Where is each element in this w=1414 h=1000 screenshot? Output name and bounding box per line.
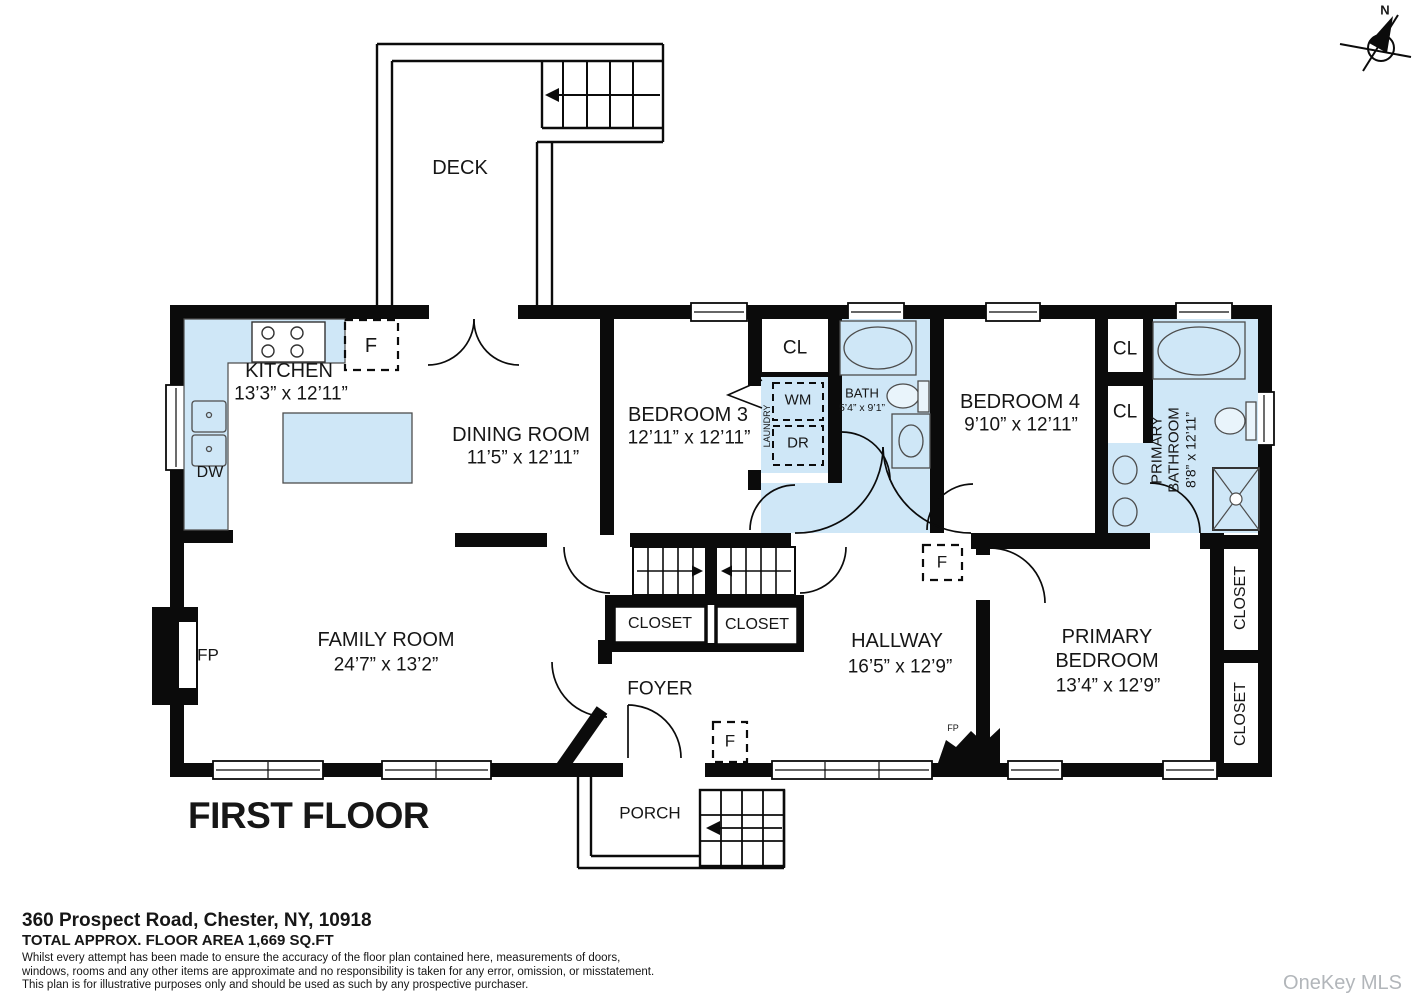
hallway-fireplace [938,728,1000,763]
hallway-label: HALLWAY [851,630,943,652]
disclaimer-line3: This plan is for illustrative purposes o… [22,979,528,992]
primary-bathtub [1153,322,1245,379]
toilet [887,384,919,408]
page-title: FIRST FLOOR [188,795,429,836]
primary-closet2-label: CLOSET [1232,682,1250,746]
bedroom4-closet1-label: CL [1113,338,1137,359]
walls [170,305,1272,777]
floor-area-text: TOTAL APPROX. FLOOR AREA 1,669 SQ.FT [22,933,334,950]
foyer-f-label: F [725,731,735,750]
bedroom4-label: BEDROOM 4 [960,391,1080,413]
bedroom4-dims: 9’10” x 12’11” [964,414,1078,435]
family-room-dims: 24’7” x 13’2” [334,654,439,675]
primary-bathroom-line1: PRIMARY [1149,407,1166,493]
floor-plan-drawing [0,0,1414,1000]
compass-icon [1340,15,1411,71]
hallway-dims: 16’5” x 12’9” [848,656,953,677]
porch-steps [700,790,784,866]
deck-stairs [545,61,660,128]
bedroom3-dims: 12’11” x 12’11” [628,427,751,448]
dishwasher-label: DW [197,464,224,482]
bathtub [840,321,916,375]
bathroom-sink [892,414,930,468]
stair-hall-door-left [564,547,610,593]
deck-door-left [428,319,474,365]
porch-label: PORCH [619,803,680,822]
primary-bathroom-dims: 8’8” x 12’11” [1183,407,1199,493]
deck-stairs-arrow-icon [545,88,559,102]
laundry-label: LAUNDRY [762,405,772,448]
kitchen-label: KITCHEN [245,360,333,382]
deck-door-right [474,319,519,365]
dining-room-label: DINING ROOM [452,424,590,446]
stair-closet-left-label: CLOSET [628,615,692,633]
front-door-arc [628,705,681,758]
primary-bathroom-label: PRIMARY BATHROOM 8’8” x 12’11” [1149,407,1198,493]
stair-hall-door-right [800,547,846,593]
hallway-f-label: F [937,552,947,571]
porch-steps-arrow-icon [706,821,720,835]
dining-room-dims: 11’5” x 12’11” [467,447,579,468]
deck-outline [377,44,663,305]
family-room-label: FAMILY ROOM [317,629,454,651]
bedroom4-closet2-label: CL [1113,401,1137,422]
primary-bedroom-door [990,548,1045,603]
fridge-label: F [365,335,377,357]
primary-bathroom-line2: BATHROOM [1166,407,1183,493]
bath-label: BATH [845,387,879,402]
interior-stairs [633,547,795,595]
disclaimer-line1: Whilst every attempt has been made to en… [22,952,620,965]
primary-bedroom-dims: 13’4” x 12’9” [1056,675,1161,696]
floor-plan-page: DECK KITCHEN 13’3” x 12’11” F DW DINING … [0,0,1414,1000]
stair-closet-right-label: CLOSET [725,616,789,634]
stove [252,322,325,362]
disclaimer-line2: windows, rooms and any other items are a… [22,966,654,979]
deck-label: DECK [432,157,488,179]
foyer-label: FOYER [627,678,692,699]
primary-bedroom-line1: PRIMARY [1062,626,1153,648]
bedroom3-label: BEDROOM 3 [628,404,748,426]
primary-closet1-label: CLOSET [1232,566,1250,630]
hallway-fireplace-label: FP [947,723,959,733]
compass-north-label: N [1380,4,1389,19]
primary-toilet [1215,408,1245,434]
kitchen-island [283,413,412,483]
washing-machine-label: WM [785,393,812,410]
porch-outline [578,777,784,868]
shower [1213,468,1259,530]
kitchen-dims: 13’3” x 12’11” [234,383,348,404]
family-room-fireplace [152,607,198,705]
dryer-label: DR [787,436,809,453]
address-text: 360 Prospect Road, Chester, NY, 10918 [22,910,372,931]
primary-bedroom-line2: BEDROOM [1055,650,1158,672]
family-fireplace-label: FP [197,645,219,664]
watermark: OneKey MLS [1283,972,1402,994]
diagonal-wall [560,710,602,770]
bath-dims: 5’4” x 9’1” [839,403,885,415]
bedroom3-closet-label: CL [783,337,807,358]
